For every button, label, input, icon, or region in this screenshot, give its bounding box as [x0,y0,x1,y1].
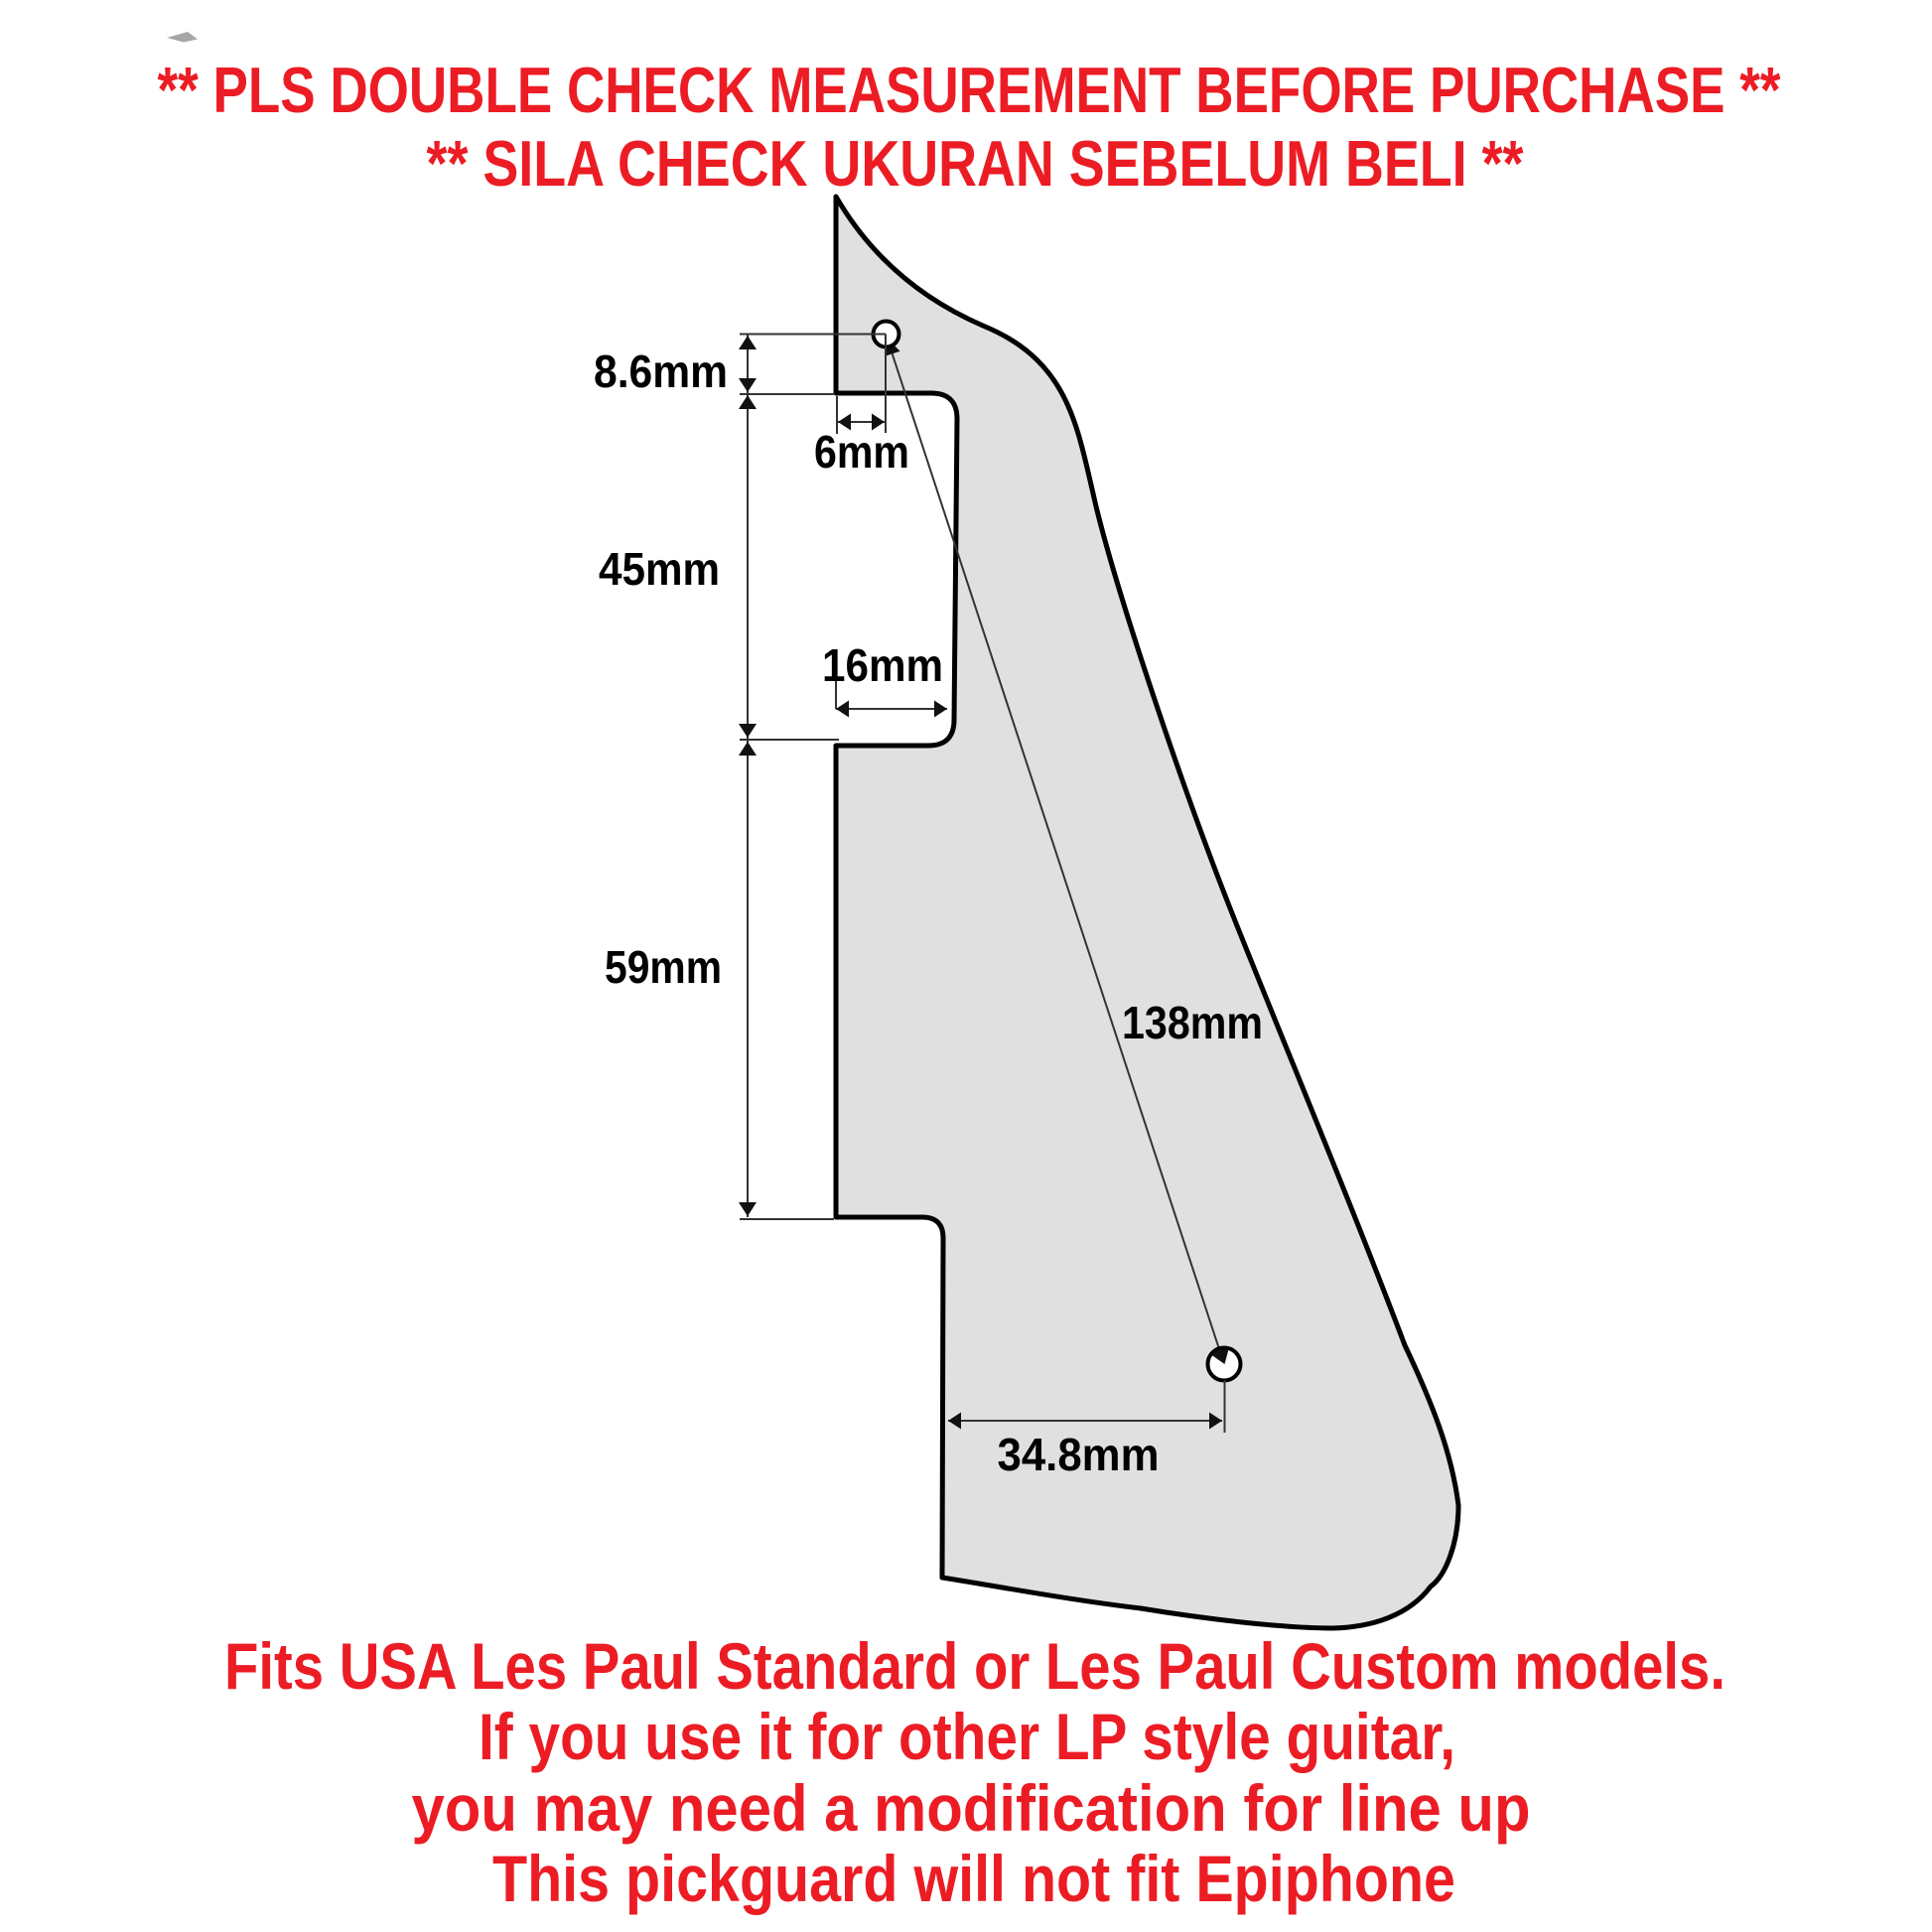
svg-text:** PLS DOUBLE CHECK MEASUREMEN: ** PLS DOUBLE CHECK MEASUREMENT BEFORE P… [158,54,1782,126]
svg-text:45mm: 45mm [599,543,720,595]
svg-text:** SILA CHECK UKURAN SEBELUM B: ** SILA CHECK UKURAN SEBELUM BELI ** [427,127,1525,200]
svg-text:This pickguard will not fit Ep: This pickguard will not fit Epiphone [492,1842,1455,1915]
svg-text:you may need a modification fo: you may need a modification for line up [412,1771,1531,1845]
svg-text:16mm: 16mm [822,639,943,691]
svg-text:6mm: 6mm [814,426,909,478]
svg-text:34.8mm: 34.8mm [998,1429,1160,1480]
svg-text:Fits USA Les Paul Standard or: Fits USA Les Paul Standard or Les Paul C… [224,1629,1725,1703]
svg-text:138mm: 138mm [1122,997,1263,1048]
svg-text:If you use it for other LP sty: If you use it for other LP style guitar, [479,1700,1455,1773]
svg-text:8.6mm: 8.6mm [594,345,728,397]
svg-text:59mm: 59mm [605,941,722,993]
